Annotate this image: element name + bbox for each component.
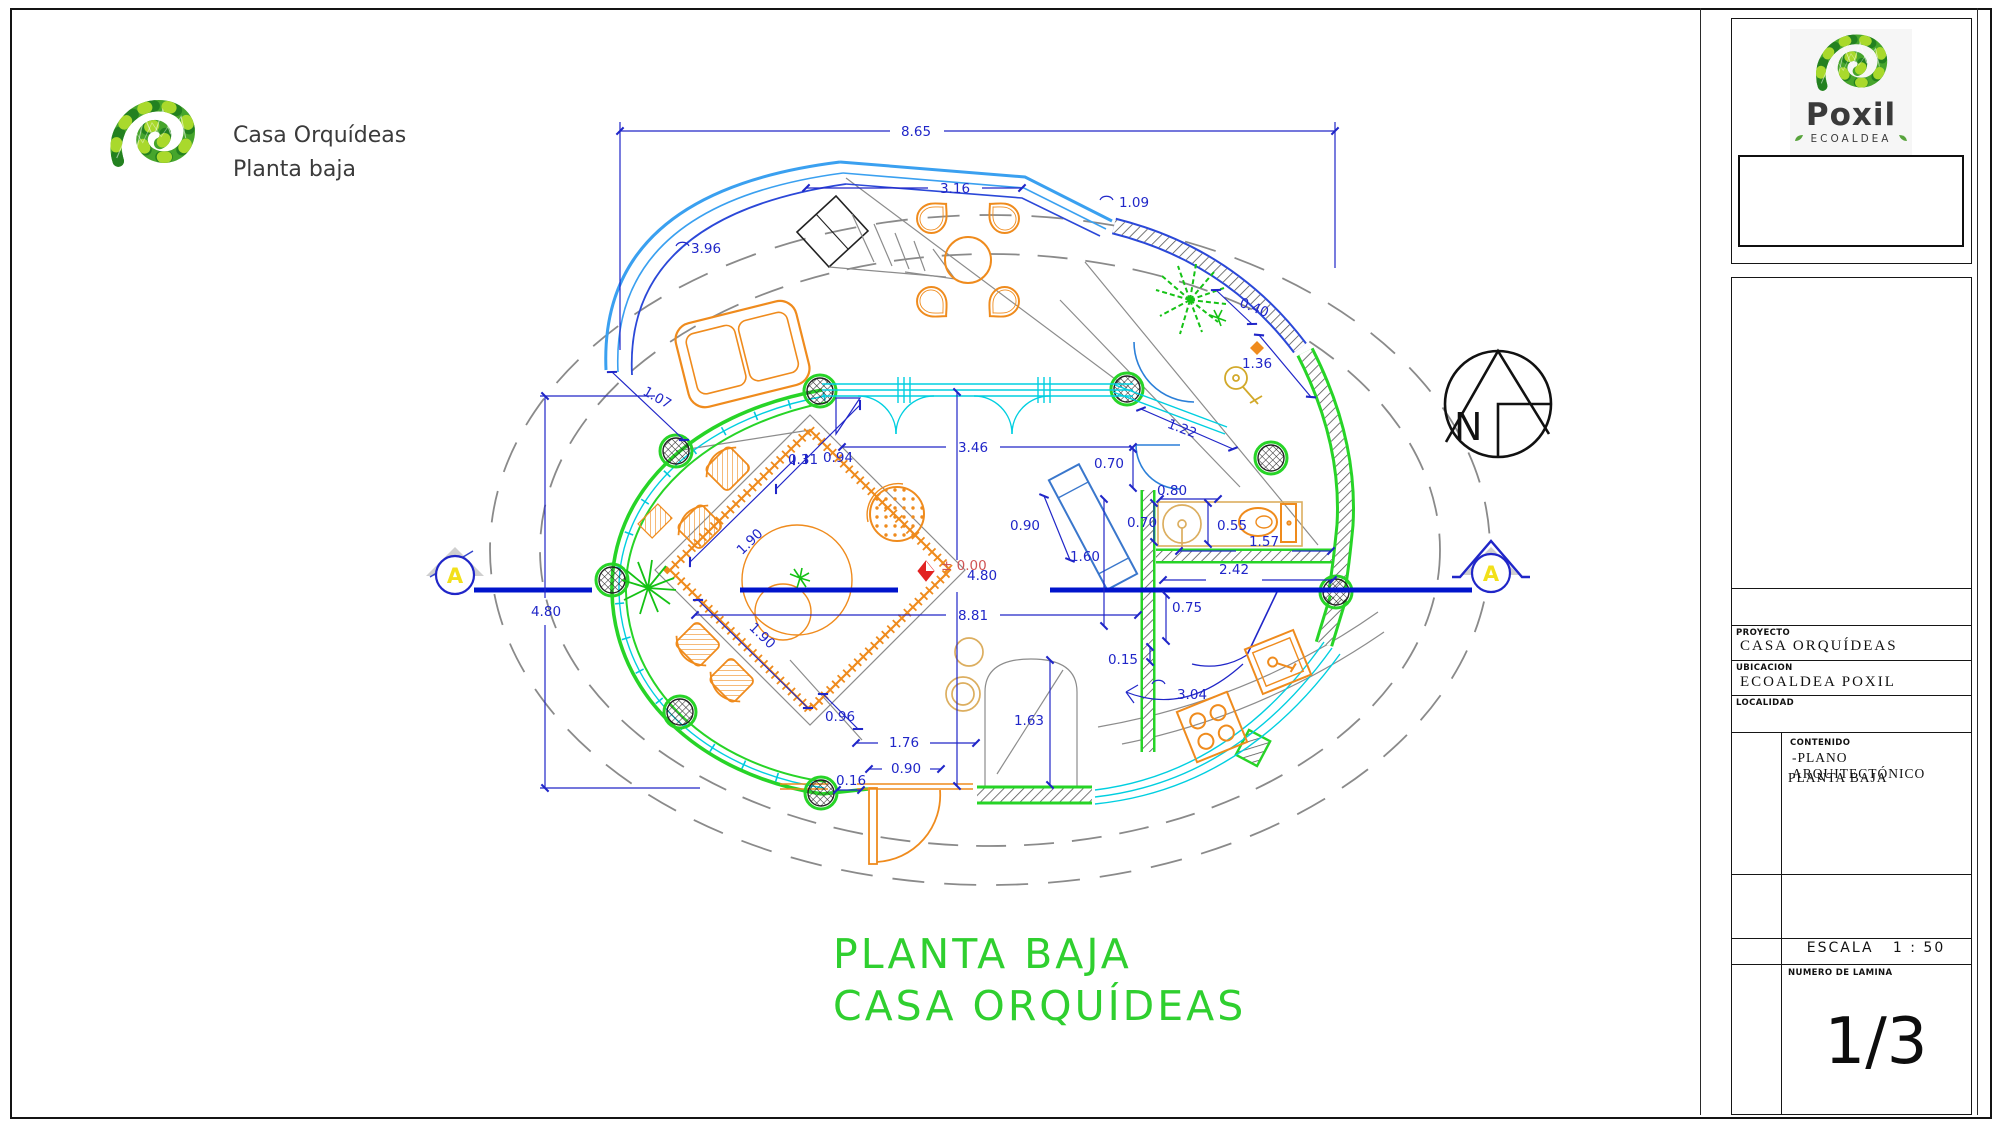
section-letter: A — [1483, 562, 1500, 586]
contenido-label: CONTENIDO — [1790, 738, 1850, 748]
north-arrow: N — [1445, 351, 1551, 457]
localidad-label: LOCALIDAD — [1736, 698, 1794, 708]
curved-glass-facade — [606, 162, 846, 375]
main-window-band — [822, 377, 1133, 434]
furniture — [622, 194, 1311, 762]
dim-label: 4.80 — [531, 604, 561, 620]
leaf-icon — [1794, 134, 1804, 142]
ubicacion-value: ECOALDEA POXIL — [1740, 674, 1896, 691]
escala-label: ESCALA — [1807, 940, 1874, 956]
titleblock-info-box: PROYECTO CASA ORQUÍDEAS UBICACION ECOALD… — [1731, 277, 1972, 1115]
dim-label: 0.55 — [1217, 518, 1247, 534]
dim-label: 1.60 — [1070, 549, 1100, 565]
dim-label: 1.07 — [640, 384, 674, 413]
north-letter: N — [1454, 405, 1482, 449]
dim-label: 0.70 — [1094, 456, 1124, 472]
brand-name: Poxil — [1790, 97, 1912, 133]
dim-label: 3.16 — [940, 181, 970, 197]
dim-label: 3.96 — [691, 241, 721, 257]
dim-label: 0.94 — [823, 450, 853, 466]
dim-label: 0.75 — [1172, 600, 1202, 616]
dim-label: 1.63 — [1014, 713, 1044, 729]
brand-subtitle: ECOALDEA — [1790, 133, 1912, 145]
column — [1255, 442, 1287, 474]
dim-label: 8.65 — [901, 124, 931, 140]
section-letter: A — [447, 564, 464, 588]
dim-label: 0.16 — [836, 773, 866, 789]
escala-value: 1 : 50 — [1893, 940, 1945, 956]
ubicacion-label: UBICACION — [1736, 663, 1793, 673]
sofa — [672, 297, 813, 410]
dim-label: 1.76 — [889, 735, 919, 751]
lamina-value: 1/3 — [1781, 978, 1971, 1106]
round-rug — [870, 487, 924, 541]
stairs — [797, 196, 955, 279]
leaf-icon — [1898, 134, 1908, 142]
corner-door — [836, 398, 860, 434]
column — [805, 777, 837, 809]
dim-label: 0.90 — [1010, 518, 1040, 534]
titleblock-logo-box: Poxil ECOALDEA — [1731, 18, 1972, 264]
titleblock-logo: Poxil ECOALDEA — [1790, 29, 1912, 157]
dim-label: 1.22 — [1165, 416, 1199, 442]
dim-label: 0.96 — [825, 709, 855, 725]
top-curtain-wall — [840, 162, 1112, 236]
blue-bench — [1049, 464, 1137, 589]
dim-label: 2.42 — [1219, 562, 1249, 578]
dim-label: 1.09 — [1119, 195, 1149, 211]
terrace-outer-wall — [1114, 226, 1300, 348]
contenido-line2: PLANTA BAJA — [1788, 770, 1888, 786]
dim-label: 1.90 — [746, 620, 779, 652]
section-marker-right: A — [1452, 541, 1530, 592]
dim-label: 0.31 — [788, 452, 818, 468]
dim-label: 0.80 — [1157, 483, 1187, 499]
dim-label: 1.36 — [1242, 356, 1272, 372]
armchair-group-upper — [638, 441, 754, 553]
dim-label: 3.46 — [958, 440, 988, 456]
escala-row: ESCALA 1 : 50 — [1781, 940, 1971, 956]
dim-label: 4.80 — [967, 568, 997, 584]
proyecto-label: PROYECTO — [1736, 628, 1790, 638]
dim-label: 3.04 — [1177, 687, 1207, 703]
column — [660, 435, 692, 467]
section-marker-left: A — [426, 547, 484, 594]
kitchen-door — [1192, 592, 1277, 666]
window-pier — [1236, 730, 1270, 766]
dim-label: 1.90 — [734, 526, 767, 558]
column — [664, 696, 696, 728]
dim-label: 0.90 — [891, 761, 921, 777]
ottoman — [638, 504, 672, 538]
titleblock-empty-field — [1738, 155, 1964, 247]
dim-label: 0.15 — [1108, 652, 1138, 668]
dim-label: 1.57 — [1249, 534, 1279, 550]
proyecto-value: CASA ORQUÍDEAS — [1740, 638, 1898, 655]
construction-lines — [655, 178, 1384, 786]
dining-set — [911, 194, 1025, 326]
cad-sheet: Casa Orquídeas Planta baja PLANTA BAJA C… — [0, 0, 2000, 1125]
bottom-door — [869, 788, 940, 864]
lamina-label: NUMERO DE LAMINA — [1788, 968, 1893, 978]
dim-label: 8.81 — [958, 608, 988, 624]
side-tables — [946, 638, 983, 711]
door-marker — [1250, 341, 1264, 355]
floor-lamp — [1225, 367, 1262, 404]
dim-label: 0.70 — [1127, 515, 1157, 531]
floor-plan-drawing: A A ± 0.00 N — [0, 0, 2000, 1125]
armchair-group-lower — [670, 618, 758, 708]
column — [804, 375, 836, 407]
